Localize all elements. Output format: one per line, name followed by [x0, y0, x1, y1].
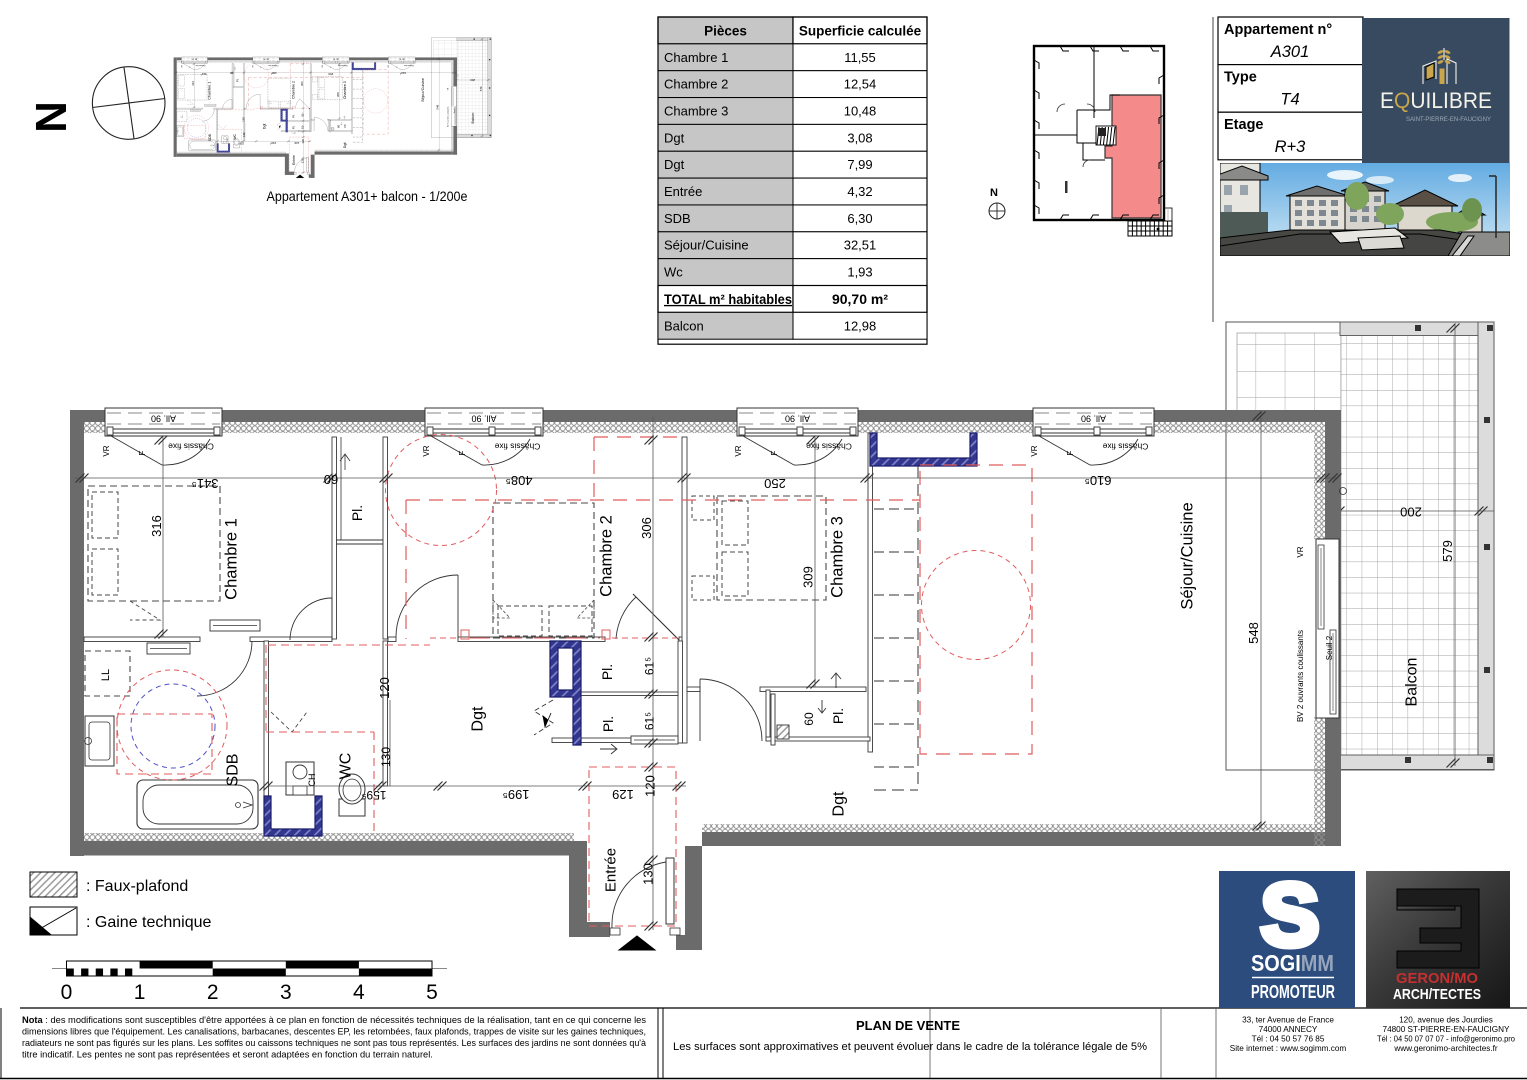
svg-text:LL: LL [100, 669, 112, 681]
svg-text:Entrée: Entrée [664, 184, 702, 199]
svg-text:120, avenue des Jourdies: 120, avenue des Jourdies [1399, 1016, 1493, 1025]
svg-text:All. 90: All. 90 [1081, 414, 1106, 424]
svg-text:341⁵: 341⁵ [191, 476, 218, 491]
svg-text:WC: WC [338, 753, 355, 780]
svg-text:ARCH/TECTES: ARCH/TECTES [1393, 986, 1481, 1003]
svg-text:Appartement n°: Appartement n° [1224, 22, 1332, 38]
svg-text:: Gaine technique: : Gaine technique [86, 914, 212, 931]
svg-text:F: F [770, 450, 779, 455]
svg-text:4: 4 [353, 981, 365, 1004]
svg-text:dimensions libres que l'équipe: dimensions libres que l'équipement. Les … [22, 1027, 646, 1037]
svg-text:120: 120 [377, 677, 392, 699]
svg-text:12,54: 12,54 [844, 77, 877, 92]
svg-text:Nota : des modifications sont: Nota : des modifications sont susceptibl… [22, 1015, 646, 1025]
svg-text:F: F [1066, 450, 1075, 455]
svg-text:129: 129 [612, 787, 634, 802]
svg-text:Châssis fixe: Châssis fixe [1102, 442, 1148, 452]
svg-text:Type: Type [1224, 70, 1257, 86]
svg-text:11,55: 11,55 [844, 50, 876, 65]
svg-text:PLAN DE VENTE: PLAN DE VENTE [856, 1018, 960, 1033]
svg-text:130: 130 [379, 747, 393, 767]
svg-text:SDB: SDB [664, 211, 691, 226]
svg-text:VR: VR [1030, 445, 1039, 456]
svg-text:titre indicatif. Les pentes ne: titre indicatif. Les pentes ne sont pas … [22, 1050, 433, 1060]
svg-text:60: 60 [324, 472, 338, 487]
svg-text:SOGIMM: SOGIMM [1251, 950, 1334, 976]
svg-text:250: 250 [764, 476, 786, 491]
svg-text:Châssis fixe: Châssis fixe [494, 442, 540, 452]
svg-text:548: 548 [1246, 622, 1261, 644]
svg-text:SDB: SDB [225, 754, 242, 787]
svg-text:Wc: Wc [664, 265, 683, 280]
svg-text:130: 130 [641, 863, 656, 885]
svg-text:Chambre 3: Chambre 3 [664, 103, 728, 118]
svg-text:N: N [27, 101, 76, 133]
svg-text:Chambre 2: Chambre 2 [598, 515, 616, 597]
svg-text:Dgt: Dgt [664, 130, 685, 145]
svg-text:Dgt: Dgt [831, 791, 848, 816]
svg-text:All. 90: All. 90 [785, 414, 810, 424]
svg-text:61⁵: 61⁵ [643, 657, 657, 675]
svg-text:F: F [138, 450, 147, 455]
svg-text:74000 ANNECY: 74000 ANNECY [1259, 1025, 1318, 1034]
svg-text:408⁵: 408⁵ [505, 473, 532, 488]
svg-text:7,99: 7,99 [847, 157, 872, 172]
svg-text:90,70 m²: 90,70 m² [832, 291, 888, 307]
svg-text:: Faux-plafond: : Faux-plafond [86, 878, 188, 895]
svg-text:VR: VR [734, 445, 743, 456]
svg-text:60: 60 [802, 712, 816, 726]
svg-text:6,30: 6,30 [847, 211, 872, 226]
svg-text:3: 3 [280, 981, 292, 1004]
svg-text:Tél : 04 50 07 07 07 - info@ge: Tél : 04 50 07 07 07 - info@geronimo.pro [1377, 1035, 1515, 1044]
svg-text:Dgt: Dgt [470, 706, 487, 731]
svg-text:Pl.: Pl. [600, 716, 616, 732]
svg-text:GERON/MO: GERON/MO [1396, 971, 1478, 987]
svg-text:0: 0 [61, 981, 73, 1004]
svg-text:TOTAL m² habitables: TOTAL m² habitables [664, 292, 792, 307]
svg-text:www.geronimo-architectes.fr: www.geronimo-architectes.fr [1393, 1044, 1498, 1053]
svg-text:32,51: 32,51 [844, 238, 877, 253]
svg-text:Les surfaces sont approximativ: Les surfaces sont approximatives et peuv… [673, 1041, 1147, 1053]
svg-text:VR: VR [422, 445, 431, 456]
svg-text:T4: T4 [1280, 91, 1299, 109]
svg-text:316: 316 [149, 515, 164, 537]
svg-text:BV 2 ouvrants coulissants: BV 2 ouvrants coulissants [1296, 630, 1305, 722]
svg-text:R+3: R+3 [1275, 138, 1307, 156]
svg-text:Chambre 1: Chambre 1 [664, 50, 728, 65]
svg-text:Pl.: Pl. [830, 708, 846, 724]
svg-text:Tél : 04 50 57 76 85: Tél : 04 50 57 76 85 [1252, 1035, 1325, 1044]
svg-text:All. 90: All. 90 [151, 414, 176, 424]
svg-text:VR: VR [1296, 546, 1305, 557]
svg-text:74800 ST-PIERRE-EN-FAUCIGNY: 74800 ST-PIERRE-EN-FAUCIGNY [1383, 1025, 1510, 1034]
svg-text:579: 579 [1440, 540, 1455, 562]
svg-text:12,98: 12,98 [844, 318, 877, 333]
svg-text:Balcon: Balcon [664, 318, 704, 333]
svg-text:199⁵: 199⁵ [502, 787, 529, 802]
svg-text:309: 309 [801, 566, 816, 588]
svg-text:1,93: 1,93 [847, 265, 872, 280]
svg-text:N: N [990, 187, 998, 199]
svg-text:159⁵: 159⁵ [361, 788, 386, 802]
svg-text:Seuil 2: Seuil 2 [1325, 635, 1334, 660]
svg-text:Entrée: Entrée [603, 848, 620, 892]
svg-text:Chambre 3: Chambre 3 [829, 516, 847, 598]
svg-text:Dgt: Dgt [664, 157, 685, 172]
svg-text:61⁵: 61⁵ [643, 712, 657, 730]
svg-text:SAINT-PIERRE-EN-FAUCIGNY: SAINT-PIERRE-EN-FAUCIGNY [1406, 116, 1491, 123]
svg-text:Superficie calculée: Superficie calculée [799, 23, 922, 38]
svg-text:All. 90: All. 90 [471, 414, 496, 424]
svg-text:PROMOTEUR: PROMOTEUR [1251, 981, 1335, 1002]
svg-text:306: 306 [639, 517, 654, 539]
svg-text:Site internet : www.sogimm.com: Site internet : www.sogimm.com [1230, 1044, 1347, 1053]
svg-text:Etage: Etage [1224, 117, 1264, 133]
svg-text:VR: VR [102, 445, 111, 456]
svg-text:Châssis fixe: Châssis fixe [168, 442, 214, 452]
svg-text:2: 2 [207, 981, 219, 1004]
svg-text:Balcon: Balcon [1404, 658, 1421, 707]
svg-text:10,48: 10,48 [844, 103, 877, 118]
svg-text:5: 5 [426, 981, 438, 1004]
svg-text:3,08: 3,08 [847, 130, 872, 145]
svg-text:A301: A301 [1270, 43, 1310, 61]
svg-text:CH: CH [307, 774, 317, 787]
svg-text:Chambre 1: Chambre 1 [223, 518, 241, 600]
svg-text:200: 200 [1400, 505, 1422, 520]
svg-text:EQUILIBRE: EQUILIBRE [1380, 88, 1492, 113]
svg-text:Chambre 2: Chambre 2 [664, 77, 728, 92]
svg-text:4,32: 4,32 [847, 184, 872, 199]
svg-text:radiateurs ne sont pas figurés: radiateurs ne sont pas figurés sur les p… [22, 1038, 647, 1048]
svg-text:Pl.: Pl. [349, 505, 365, 521]
svg-text:Séjour/Cuisine: Séjour/Cuisine [664, 238, 749, 253]
svg-text:33, ter Avenue de France: 33, ter Avenue de France [1242, 1016, 1334, 1025]
svg-text:Pièces: Pièces [704, 23, 747, 38]
svg-text:1: 1 [134, 981, 146, 1004]
svg-text:Séjour/Cuisine: Séjour/Cuisine [1179, 502, 1197, 609]
svg-text:Pl.: Pl. [599, 664, 615, 680]
svg-text:Appartement A301+ balcon - 1/2: Appartement A301+ balcon - 1/200e [267, 188, 468, 204]
svg-text:610⁵: 610⁵ [1084, 473, 1111, 488]
svg-text:F: F [458, 450, 467, 455]
